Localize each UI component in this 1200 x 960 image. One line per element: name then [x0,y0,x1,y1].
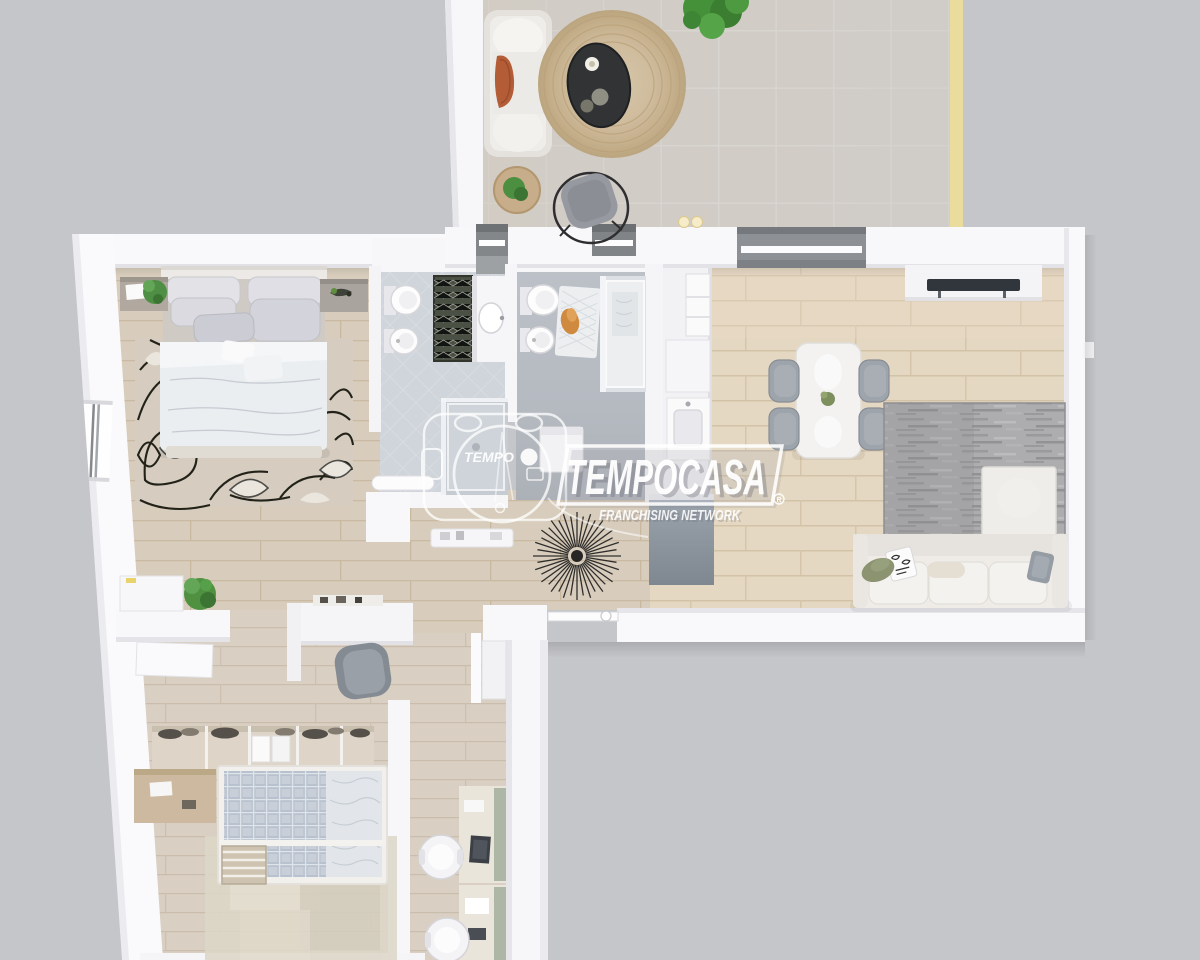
svg-text:R: R [777,497,782,504]
svg-text:FRANCHISING NETWORK: FRANCHISING NETWORK [599,508,741,524]
svg-text:TEMPOCASA: TEMPOCASA [566,451,766,505]
svg-text:TEMPO: TEMPO [464,449,514,465]
